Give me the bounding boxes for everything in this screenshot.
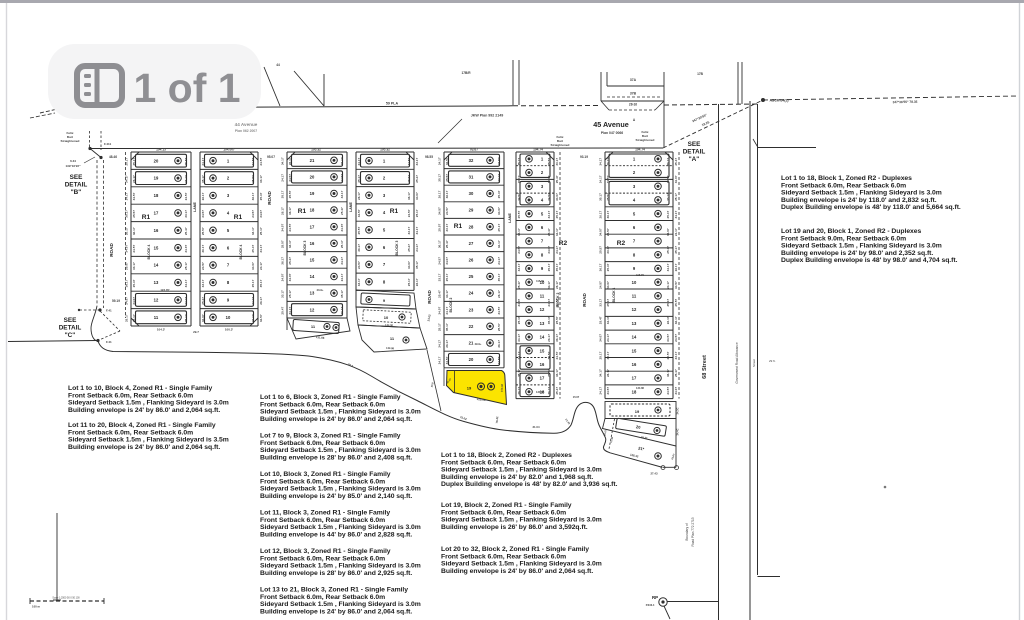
svg-text:34.17: 34.17 bbox=[415, 226, 419, 234]
svg-text:25.57: 25.57 bbox=[547, 158, 551, 166]
svg-text:25.47: 25.47 bbox=[517, 281, 521, 289]
svg-text:26.17: 26.17 bbox=[547, 334, 551, 342]
svg-text:59 PLA: 59 PLA bbox=[386, 102, 399, 106]
svg-text:35.17: 35.17 bbox=[555, 263, 559, 271]
svg-text:25.17: 25.17 bbox=[415, 209, 419, 217]
svg-text:R2: R2 bbox=[559, 240, 568, 247]
svg-text:123.76': 123.76' bbox=[160, 288, 170, 292]
svg-text:36.17: 36.17 bbox=[184, 175, 188, 183]
svg-text:11: 11 bbox=[540, 293, 545, 298]
svg-text:24.17: 24.17 bbox=[606, 334, 610, 342]
svg-text:36.17: 36.17 bbox=[666, 158, 670, 166]
svg-text:25.57: 25.57 bbox=[407, 175, 411, 183]
svg-text:34.17: 34.17 bbox=[281, 157, 285, 165]
svg-text:26.17: 26.17 bbox=[259, 297, 263, 305]
svg-text:25.17: 25.17 bbox=[340, 240, 344, 248]
svg-text:Building envelope is 28' by 86: Building envelope is 28' by 86.0' and 2,… bbox=[260, 454, 412, 461]
svg-text:Building envelope is 26' by 86: Building envelope is 26' by 86.0' and 3,… bbox=[441, 524, 588, 531]
svg-text:ROAD: ROAD bbox=[109, 243, 114, 257]
svg-text:25.47: 25.47 bbox=[674, 369, 678, 377]
svg-text:24.17: 24.17 bbox=[340, 273, 344, 281]
svg-text:25.47: 25.47 bbox=[251, 245, 255, 253]
svg-text:26.17: 26.17 bbox=[357, 192, 361, 200]
svg-text:49.9+: 49.9+ bbox=[474, 342, 481, 346]
svg-text:25.57: 25.57 bbox=[547, 369, 551, 377]
svg-text:34.4C: 34.4C bbox=[676, 428, 680, 435]
svg-text:34.07: 34.07 bbox=[666, 228, 670, 236]
svg-text:35.17: 35.17 bbox=[445, 323, 449, 331]
svg-text:17B/R: 17B/R bbox=[461, 71, 471, 75]
svg-text:44 Avenue: 44 Avenue bbox=[235, 122, 258, 127]
svg-text:25.17: 25.17 bbox=[517, 316, 521, 324]
svg-text:34.07: 34.07 bbox=[132, 297, 136, 305]
svg-text:24.57: 24.57 bbox=[132, 245, 136, 253]
svg-text:33.17: 33.17 bbox=[288, 240, 292, 248]
svg-text:139°16'22": 139°16'22" bbox=[65, 164, 81, 168]
svg-text:17: 17 bbox=[154, 211, 159, 216]
svg-text:34.17: 34.17 bbox=[445, 290, 449, 298]
svg-text:29: 29 bbox=[469, 208, 474, 213]
svg-text:27.43: 27.43 bbox=[651, 472, 658, 476]
svg-text:33.17: 33.17 bbox=[555, 158, 559, 166]
svg-text:34.57: 34.57 bbox=[674, 281, 678, 289]
svg-text:34.17: 34.17 bbox=[438, 340, 442, 348]
svg-text:34.57: 34.57 bbox=[666, 334, 670, 342]
svg-text:35.17: 35.17 bbox=[281, 190, 285, 198]
svg-text:26.17: 26.17 bbox=[606, 369, 610, 377]
svg-text:34.57: 34.57 bbox=[599, 228, 603, 236]
svg-text:36.17: 36.17 bbox=[438, 240, 442, 248]
svg-text:32: 32 bbox=[469, 158, 474, 163]
svg-text:25.47: 25.47 bbox=[599, 316, 603, 324]
svg-text:24.57: 24.57 bbox=[555, 351, 559, 359]
svg-text:36.17: 36.17 bbox=[666, 369, 670, 377]
svg-text:24.57: 24.57 bbox=[281, 273, 285, 281]
svg-text:25.57: 25.57 bbox=[357, 226, 361, 234]
svg-text:25.47: 25.47 bbox=[547, 228, 551, 236]
svg-text:34.17: 34.17 bbox=[184, 279, 188, 287]
svg-text:25.17: 25.17 bbox=[666, 246, 670, 254]
svg-text:34.57: 34.57 bbox=[606, 175, 610, 183]
svg-text:34.07: 34.07 bbox=[407, 261, 411, 269]
svg-text:25.17: 25.17 bbox=[251, 279, 255, 287]
svg-text:59.19: 59.19 bbox=[112, 299, 120, 303]
svg-text:23: 23 bbox=[469, 307, 474, 312]
svg-text:26.17: 26.17 bbox=[674, 263, 678, 271]
svg-text:Building envelope is 28' by 86: Building envelope is 28' by 86.0' and 2,… bbox=[260, 570, 412, 577]
svg-text:27: 27 bbox=[469, 241, 474, 246]
svg-text:25.17: 25.17 bbox=[547, 263, 551, 271]
svg-text:34.07: 34.07 bbox=[445, 257, 449, 265]
svg-text:26.17: 26.17 bbox=[340, 307, 344, 315]
svg-text:Sideyard Setback 1.5m , Flanki: Sideyard Setback 1.5m , Flanking Sideyar… bbox=[441, 517, 602, 524]
svg-text:103.82: 103.82 bbox=[500, 383, 504, 392]
svg-text:34.57: 34.57 bbox=[517, 193, 521, 201]
svg-text:25.17: 25.17 bbox=[407, 278, 411, 286]
svg-text:Building envelope is 44' by 86: Building envelope is 44' by 86.0' and 2,… bbox=[260, 531, 412, 538]
svg-text:24.17: 24.17 bbox=[201, 158, 205, 166]
svg-text:36.17: 36.17 bbox=[340, 157, 344, 165]
svg-text:34.07: 34.07 bbox=[547, 246, 551, 254]
svg-text:33.17: 33.17 bbox=[517, 263, 521, 271]
svg-text:35.17: 35.17 bbox=[125, 210, 129, 218]
svg-text:134.86: 134.86 bbox=[386, 346, 395, 351]
svg-text:25.57: 25.57 bbox=[281, 240, 285, 248]
svg-text:25.47: 25.47 bbox=[281, 307, 285, 315]
svg-text:35.17: 35.17 bbox=[674, 246, 678, 254]
svg-text:14: 14 bbox=[632, 335, 637, 340]
svg-text:34.07: 34.07 bbox=[674, 175, 678, 183]
svg-text:26.17: 26.17 bbox=[497, 290, 501, 298]
svg-text:31: 31 bbox=[469, 175, 474, 180]
svg-text:24.17: 24.17 bbox=[666, 281, 670, 289]
svg-text:13: 13 bbox=[540, 321, 545, 326]
svg-text:20: 20 bbox=[469, 357, 474, 362]
svg-text:Sideyard Setback 1.5m , Flanki: Sideyard Setback 1.5m , Flanking Sideyar… bbox=[441, 467, 602, 474]
svg-text:34.07: 34.07 bbox=[251, 262, 255, 270]
svg-text:104.74: 104.74 bbox=[533, 148, 543, 152]
svg-text:37B: 37B bbox=[630, 92, 637, 96]
svg-text:Building envelope is 24' by 11: Building envelope is 24' by 118.0' and 2… bbox=[781, 197, 937, 204]
svg-text:17B: 17B bbox=[697, 72, 704, 76]
svg-text:26: 26 bbox=[469, 258, 474, 263]
svg-text:24.57: 24.57 bbox=[445, 207, 449, 215]
svg-text:17: 17 bbox=[310, 224, 315, 229]
svg-text:36.17: 36.17 bbox=[407, 192, 411, 200]
svg-text:24.17: 24.17 bbox=[674, 228, 678, 236]
svg-text:35.17: 35.17 bbox=[517, 369, 521, 377]
svg-text:44: 44 bbox=[276, 63, 280, 67]
svg-text:25.47: 25.47 bbox=[555, 387, 559, 395]
svg-text:34.57: 34.57 bbox=[445, 356, 449, 364]
svg-text:03.67: 03.67 bbox=[470, 148, 478, 152]
svg-text:Lot 19, Block 2, Zoned R1 - Si: Lot 19, Block 2, Zoned R1 - Single Famil… bbox=[441, 502, 572, 509]
svg-text:33.17: 33.17 bbox=[132, 262, 136, 270]
svg-text:BLOCK 2: BLOCK 2 bbox=[556, 292, 560, 307]
svg-text:33.17: 33.17 bbox=[445, 224, 449, 232]
svg-text:34.57: 34.57 bbox=[288, 174, 292, 182]
svg-text:Street: Street bbox=[752, 359, 756, 367]
svg-text:33.17: 33.17 bbox=[415, 157, 419, 165]
svg-text:25.47: 25.47 bbox=[340, 207, 344, 215]
svg-text:Building envelope is 24' by 86: Building envelope is 24' by 86.0' and 2,… bbox=[68, 407, 220, 414]
svg-text:Sideyard Setback 1.5m , Flanki: Sideyard Setback 1.5m , Flanking Sideyar… bbox=[68, 400, 229, 407]
svg-text:25.57: 25.57 bbox=[606, 193, 610, 201]
svg-text:34.3C: 34.3C bbox=[676, 407, 680, 414]
svg-text:34.57: 34.57 bbox=[407, 157, 411, 165]
svg-text:25.17: 25.17 bbox=[125, 158, 129, 166]
svg-text:16: 16 bbox=[540, 362, 545, 367]
svg-text:34.07: 34.07 bbox=[606, 281, 610, 289]
svg-text:Lot 1 to 10, Block 4, Zoned R1: Lot 1 to 10, Block 4, Zoned R1 - Single … bbox=[68, 385, 213, 392]
svg-text:35.17: 35.17 bbox=[259, 279, 263, 287]
svg-text:34.17: 34.17 bbox=[259, 245, 263, 253]
svg-text:19: 19 bbox=[635, 409, 640, 414]
svg-text:24.17: 24.17 bbox=[125, 192, 129, 200]
svg-text:SEE: SEE bbox=[688, 141, 702, 148]
svg-text:13: 13 bbox=[632, 321, 637, 326]
svg-text:10: 10 bbox=[632, 280, 637, 285]
svg-text:33.17: 33.17 bbox=[201, 279, 205, 287]
svg-text:24.17: 24.17 bbox=[517, 351, 521, 359]
svg-text:SEE: SEE bbox=[64, 317, 78, 324]
svg-text:Duplex Building envelope is 48: Duplex Building envelope is 48' by 118.0… bbox=[781, 204, 961, 211]
svg-text:Front Setback 6.0m, Rear Setba: Front Setback 6.0m, Rear Setback 6.0m bbox=[260, 555, 385, 562]
svg-text:10: 10 bbox=[226, 315, 231, 320]
svg-text:36.17: 36.17 bbox=[517, 228, 521, 236]
svg-text:BLOCK 2: BLOCK 2 bbox=[449, 297, 453, 312]
svg-text:24.17: 24.17 bbox=[357, 157, 361, 165]
svg-text:Road Plan 772 2713: Road Plan 772 2713 bbox=[691, 517, 695, 546]
svg-text:Sideyard Setback 1.5m , Flanki: Sideyard Setback 1.5m , Flanking Sideyar… bbox=[781, 190, 942, 197]
svg-text:Lot 20 to 32, Block 2, Zoned R: Lot 20 to 32, Block 2, Zoned R1 - Single… bbox=[441, 546, 589, 553]
svg-text:104.3': 104.3' bbox=[157, 328, 166, 332]
svg-text:15: 15 bbox=[632, 348, 637, 353]
svg-text:24.57: 24.57 bbox=[666, 387, 670, 395]
svg-text:18: 18 bbox=[632, 389, 637, 394]
svg-text:34.07: 34.07 bbox=[259, 210, 263, 218]
svg-text:34.17: 34.17 bbox=[125, 175, 129, 183]
svg-text:25.57: 25.57 bbox=[517, 211, 521, 219]
svg-text:21: 21 bbox=[310, 158, 315, 163]
svg-text:25.17: 25.17 bbox=[555, 211, 559, 219]
svg-text:24.57: 24.57 bbox=[201, 262, 205, 270]
svg-text:Duplex Building envelope is 48: Duplex Building envelope is 48' by 82.0'… bbox=[441, 481, 618, 488]
svg-text:35.17: 35.17 bbox=[547, 316, 551, 324]
svg-text:Front Setback 6.0m, Rear Setba: Front Setback 6.0m, Rear Setback 6.0m bbox=[441, 459, 566, 466]
svg-text:33.17: 33.17 bbox=[547, 211, 551, 219]
svg-text:34.07: 34.07 bbox=[674, 387, 678, 395]
svg-text:34.57: 34.57 bbox=[259, 314, 263, 322]
svg-text:Sideyard Setback 1.5m , Flanki: Sideyard Setback 1.5m , Flanking Sideyar… bbox=[260, 447, 421, 454]
svg-text:33.17: 33.17 bbox=[340, 190, 344, 198]
svg-text:R1: R1 bbox=[298, 208, 307, 215]
svg-text:34.57: 34.57 bbox=[251, 158, 255, 166]
svg-text:25.17: 25.17 bbox=[445, 273, 449, 281]
svg-text:R2: R2 bbox=[617, 240, 626, 247]
svg-text:34.57: 34.57 bbox=[497, 307, 501, 315]
svg-text:"A": "A" bbox=[689, 156, 700, 163]
svg-text:34.07: 34.07 bbox=[415, 192, 419, 200]
svg-text:26.17: 26.17 bbox=[201, 192, 205, 200]
svg-text:Building envelope is 24' by 82: Building envelope is 24' by 82.0' and 1,… bbox=[441, 474, 593, 481]
svg-text:25.57: 25.57 bbox=[599, 246, 603, 254]
svg-text:33.17: 33.17 bbox=[674, 351, 678, 359]
svg-text:35.17: 35.17 bbox=[415, 261, 419, 269]
svg-text:Front Setback 6.0m, Rear Setba: Front Setback 6.0m, Rear Setback 6.0m bbox=[260, 440, 385, 447]
svg-text:105.32: 105.32 bbox=[380, 148, 390, 152]
svg-text:104.007: 104.007 bbox=[223, 148, 235, 152]
svg-text:25.17: 25.17 bbox=[674, 193, 678, 201]
svg-text:24.57: 24.57 bbox=[438, 257, 442, 265]
svg-text:68 Street: 68 Street bbox=[702, 355, 708, 379]
svg-text:24.57: 24.57 bbox=[517, 246, 521, 254]
svg-text:35.17: 35.17 bbox=[357, 175, 361, 183]
svg-text:105.32: 105.32 bbox=[311, 148, 321, 152]
svg-text:98.55: 98.55 bbox=[425, 155, 433, 159]
svg-text:34.57: 34.57 bbox=[547, 351, 551, 359]
svg-text:17: 17 bbox=[632, 376, 637, 381]
svg-text:25.57: 25.57 bbox=[674, 299, 678, 307]
svg-text:34.17: 34.17 bbox=[288, 307, 292, 315]
svg-text:DETAIL: DETAIL bbox=[65, 182, 88, 189]
svg-text:35.17: 35.17 bbox=[497, 273, 501, 281]
svg-text:24.17: 24.17 bbox=[599, 387, 603, 395]
svg-text:26.17: 26.17 bbox=[517, 387, 521, 395]
svg-text:JKW Plan 992 2149: JKW Plan 992 2149 bbox=[471, 114, 504, 118]
svg-text:BLOCK 4: BLOCK 4 bbox=[147, 244, 151, 259]
svg-text:33.17: 33.17 bbox=[606, 246, 610, 254]
svg-text:Front Setback 6.0m, Rear Setba: Front Setback 6.0m, Rear Setback 6.0m bbox=[260, 478, 385, 485]
svg-text:25.17: 25.17 bbox=[288, 290, 292, 298]
svg-text:24.57: 24.57 bbox=[288, 224, 292, 232]
svg-text:Sideyard Setback 1.5m , Flanki: Sideyard Setback 1.5m , Flanking Sideyar… bbox=[260, 601, 421, 608]
svg-text:25.47: 25.47 bbox=[666, 211, 670, 219]
svg-text:16: 16 bbox=[310, 241, 315, 246]
svg-text:Lot 7 to 9, Block 3, Zoned R1: Lot 7 to 9, Block 3, Zoned R1 - Single F… bbox=[260, 433, 401, 440]
svg-text:24.57: 24.57 bbox=[125, 297, 129, 305]
svg-text:45 Avenue: 45 Avenue bbox=[593, 120, 628, 129]
svg-text:24.57: 24.57 bbox=[184, 192, 188, 200]
svg-text:Straightened: Straightened bbox=[551, 143, 570, 147]
svg-text:24.57: 24.57 bbox=[666, 175, 670, 183]
svg-text:33.17: 33.17 bbox=[599, 299, 603, 307]
svg-text:Boundary of: Boundary of bbox=[685, 523, 689, 540]
svg-text:BLOCK 4: BLOCK 4 bbox=[239, 244, 243, 259]
svg-text:24.57: 24.57 bbox=[497, 356, 501, 364]
svg-text:34.07: 34.07 bbox=[288, 273, 292, 281]
svg-text:Sideyard Setback 1.5m , Flanki: Sideyard Setback 1.5m , Flanking Sideyar… bbox=[68, 437, 229, 444]
svg-text:24.57: 24.57 bbox=[599, 281, 603, 289]
svg-text:21: 21 bbox=[469, 341, 474, 346]
svg-text:13: 13 bbox=[310, 291, 315, 296]
svg-text:34.57: 34.57 bbox=[281, 224, 285, 232]
svg-text:Lot 11 to 20, Block 4, Zoned R: Lot 11 to 20, Block 4, Zoned R1 - Single… bbox=[68, 422, 216, 429]
svg-text:35.17: 35.17 bbox=[438, 174, 442, 182]
svg-text:"C": "C" bbox=[65, 332, 76, 339]
svg-text:11: 11 bbox=[632, 293, 637, 298]
svg-text:Lot 1 to 6, Block 3, Zoned R1: Lot 1 to 6, Block 3, Zoned R1 - Single F… bbox=[260, 394, 401, 401]
svg-text:Lot 12, Block 3, Zoned R1 - Si: Lot 12, Block 3, Zoned R1 - Single Famil… bbox=[260, 548, 391, 555]
svg-text:Front Setback 6.0m, Rear Setba: Front Setback 6.0m, Rear Setback 6.0m bbox=[441, 509, 566, 516]
svg-text:76.42: 76.42 bbox=[495, 416, 500, 424]
svg-text:36.17: 36.17 bbox=[201, 245, 205, 253]
svg-text:24.17: 24.17 bbox=[281, 174, 285, 182]
svg-text:15.07: 15.07 bbox=[573, 395, 580, 399]
svg-text:Sideyard Setback 1.5m , Flanki: Sideyard Setback 1.5m , Flanking Sideyar… bbox=[260, 486, 421, 493]
svg-text:33.17: 33.17 bbox=[259, 175, 263, 183]
svg-text:Building envelope is 24' by 86: Building envelope is 24' by 86.0' and 2,… bbox=[441, 568, 593, 575]
svg-text:"B": "B" bbox=[71, 189, 82, 196]
svg-text:36.17: 36.17 bbox=[125, 279, 129, 287]
svg-text:29 ft.: 29 ft. bbox=[769, 359, 776, 363]
svg-text:34.17: 34.17 bbox=[497, 240, 501, 248]
svg-text:28-16: 28-16 bbox=[629, 103, 637, 107]
svg-text:34.17: 34.17 bbox=[674, 211, 678, 219]
svg-text:Front Setback 6.0m, Rear Setba: Front Setback 6.0m, Rear Setback 6.0m bbox=[781, 182, 906, 189]
svg-text:Building envelope is 24' by 86: Building envelope is 24' by 86.0' and 2,… bbox=[260, 416, 412, 423]
svg-text:Straightened: Straightened bbox=[636, 138, 655, 142]
svg-text:36.17: 36.17 bbox=[281, 257, 285, 265]
svg-text:26.17: 26.17 bbox=[438, 190, 442, 198]
svg-text:10: 10 bbox=[384, 315, 389, 320]
svg-text:25.57: 25.57 bbox=[251, 175, 255, 183]
svg-text:13: 13 bbox=[154, 280, 159, 285]
svg-text:20: 20 bbox=[154, 158, 159, 163]
svg-text:36.17: 36.17 bbox=[497, 340, 501, 348]
svg-text:48.46: 48.46 bbox=[109, 155, 117, 159]
svg-text:26.17: 26.17 bbox=[517, 175, 521, 183]
svg-text:24.17: 24.17 bbox=[184, 297, 188, 305]
svg-text:24.57: 24.57 bbox=[407, 209, 411, 217]
svg-text:24.17: 24.17 bbox=[547, 299, 551, 307]
svg-text:25.47: 25.47 bbox=[438, 290, 442, 298]
svg-text:28: 28 bbox=[469, 224, 474, 229]
svg-text:SEE: SEE bbox=[70, 174, 84, 181]
svg-text:104.15: 104.15 bbox=[156, 148, 166, 152]
svg-text:34.57: 34.57 bbox=[125, 245, 129, 253]
svg-text:24.17: 24.17 bbox=[599, 175, 603, 183]
svg-text:17: 17 bbox=[540, 376, 545, 381]
svg-text:35.17: 35.17 bbox=[184, 314, 188, 322]
svg-text:ROAD: ROAD bbox=[427, 290, 432, 304]
svg-text:34.07: 34.07 bbox=[555, 193, 559, 201]
svg-text:34.17: 34.17 bbox=[251, 297, 255, 305]
svg-text:18: 18 bbox=[310, 208, 315, 213]
svg-text:Duplex Building envelope is 48: Duplex Building envelope is 48' by 98.0'… bbox=[781, 257, 958, 264]
svg-text:Lot 11, Block 3, Zoned R1 - Si: Lot 11, Block 3, Zoned R1 - Single Famil… bbox=[260, 510, 390, 517]
svg-text:25.17: 25.17 bbox=[259, 227, 263, 235]
svg-text:34.17: 34.17 bbox=[555, 228, 559, 236]
svg-text:F.41: F.41 bbox=[106, 309, 112, 313]
svg-text:33.17: 33.17 bbox=[281, 290, 285, 298]
svg-text:ROAD: ROAD bbox=[582, 293, 587, 307]
svg-text:25.47: 25.47 bbox=[497, 190, 501, 198]
svg-text:36.17: 36.17 bbox=[606, 211, 610, 219]
svg-text:134.86: 134.86 bbox=[536, 390, 544, 394]
svg-text:Plan 047 0066: Plan 047 0066 bbox=[601, 131, 623, 135]
svg-text:36.17: 36.17 bbox=[251, 192, 255, 200]
svg-text:34.57: 34.57 bbox=[438, 207, 442, 215]
svg-text:1 of 1: 1 of 1 bbox=[133, 65, 240, 111]
svg-text:29.7: 29.7 bbox=[193, 330, 199, 334]
svg-text:24.17: 24.17 bbox=[259, 262, 263, 270]
svg-text:F.41: F.41 bbox=[106, 340, 112, 344]
svg-text:33.17: 33.17 bbox=[251, 227, 255, 235]
svg-text:35.17: 35.17 bbox=[340, 290, 344, 298]
svg-text:25.57: 25.57 bbox=[666, 351, 670, 359]
svg-text:25.47: 25.47 bbox=[674, 158, 678, 166]
svg-text:Sideyard Setback 1.5m , Flanki: Sideyard Setback 1.5m , Flanking Sideyar… bbox=[781, 243, 942, 250]
svg-text:24.57: 24.57 bbox=[251, 210, 255, 218]
svg-text:34.07: 34.07 bbox=[201, 314, 205, 322]
svg-text:RP: RP bbox=[652, 595, 658, 600]
svg-text:25.17: 25.17 bbox=[497, 224, 501, 232]
svg-text:15: 15 bbox=[310, 258, 315, 263]
svg-text:25.47: 25.47 bbox=[415, 175, 419, 183]
svg-text:R1: R1 bbox=[234, 214, 243, 221]
svg-text:34.07: 34.07 bbox=[184, 245, 188, 253]
svg-text:DETAIL: DETAIL bbox=[683, 149, 706, 156]
svg-text:35.17: 35.17 bbox=[606, 351, 610, 359]
svg-text:16: 16 bbox=[632, 362, 637, 367]
svg-text:33.17: 33.17 bbox=[125, 314, 129, 322]
svg-text:115.00: 115.00 bbox=[536, 279, 544, 283]
svg-text:95.07: 95.07 bbox=[267, 155, 275, 159]
svg-text:24.57: 24.57 bbox=[606, 228, 610, 236]
svg-text:Front Setback 6.0m, Rear Setba: Front Setback 6.0m, Rear Setback 6.0m bbox=[68, 392, 193, 399]
svg-text:BLOCK 3: BLOCK 3 bbox=[303, 240, 307, 255]
